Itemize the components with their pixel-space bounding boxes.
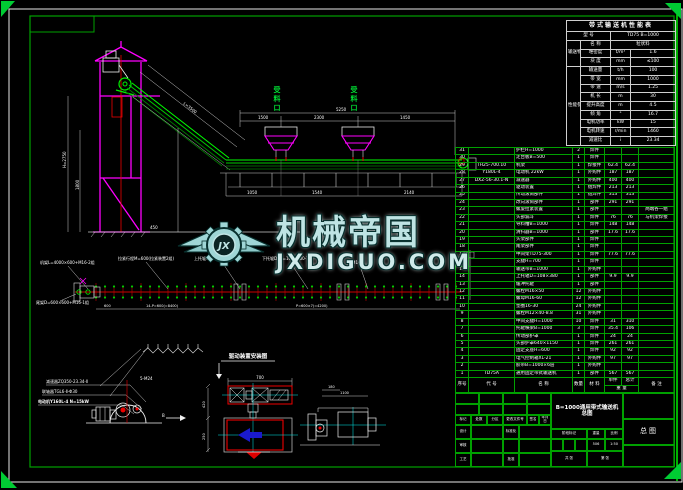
bom-cell xyxy=(639,303,675,310)
bom-cell xyxy=(622,303,639,310)
bom-cell: 77.6 xyxy=(605,251,622,258)
bom-cell: 电动机 22kW xyxy=(515,170,573,177)
bom-cell xyxy=(469,296,515,303)
dim-label: 700 xyxy=(256,375,264,380)
install-title: 驱动装置安装图 xyxy=(229,352,268,360)
bom-cell: 外购件 xyxy=(585,355,605,362)
bom-cell: 6 xyxy=(456,333,469,340)
bom-cell: 76 xyxy=(605,214,622,221)
bom-cell xyxy=(639,348,675,355)
motor-plan xyxy=(222,386,298,404)
bom-cell xyxy=(605,259,622,266)
title-block-cell xyxy=(519,439,551,453)
title-block-cell-count: 处数 xyxy=(471,415,487,425)
bom-cell: 11 xyxy=(456,296,469,303)
title-block-cell-approve: 批准 xyxy=(503,453,519,467)
dim-label: L=3500 xyxy=(182,101,198,115)
bom-cell: 5 xyxy=(456,340,469,347)
dim-label: 1050 xyxy=(247,190,258,195)
bom-cell: 焊件 xyxy=(585,148,605,155)
bom-cell: 两端各一组 xyxy=(639,207,675,214)
bom-cell: 2 xyxy=(456,363,469,370)
title-block-cell xyxy=(503,393,527,404)
bom-cell xyxy=(605,244,622,251)
perf-cell: 型 号 xyxy=(567,32,611,41)
bom-cell xyxy=(622,289,639,296)
bom-cell: 外购件 xyxy=(585,177,605,184)
bom-cell: 与机架焊接 xyxy=(639,214,675,221)
bom-cell: 31 xyxy=(456,148,469,155)
bom-cell xyxy=(605,207,622,214)
bom-cell: 148 xyxy=(605,222,622,229)
bom-cell: 35.4 xyxy=(605,326,622,333)
bom-cell: 24 xyxy=(622,333,639,340)
bom-cell: 1 xyxy=(573,274,585,281)
bom-cell: 148 xyxy=(622,222,639,229)
dim-label: 450 xyxy=(150,225,158,230)
title-block-cell-weight: 506 xyxy=(587,439,605,451)
bom-cell: 1 xyxy=(573,177,585,184)
bom-cell: 400 xyxy=(605,177,622,184)
horizontal-belt xyxy=(220,160,466,187)
bom-cell xyxy=(639,155,675,162)
logo-monogram: JX xyxy=(216,241,231,252)
bom-cell: 1 xyxy=(573,222,585,229)
belt-legs xyxy=(240,173,456,187)
bom-cell: 外购件 xyxy=(585,170,605,177)
perf-cell: 1.25 xyxy=(631,84,676,93)
bom-cell: 291 xyxy=(605,199,622,206)
title-block-cell-check: 审核 xyxy=(455,439,471,453)
bom-cell: DXZ-56-30.1-N xyxy=(469,177,515,184)
drive-station-view: 减速器ZQ350-23.34-Ⅱ 联轴器TGL6-Ⅱ-Φ30 电动机Y160L-… xyxy=(38,344,203,423)
title-block-cell-sheet_no: 第 张 xyxy=(587,451,623,467)
bom-cell: 尾架部件 xyxy=(515,244,573,251)
title-block-cell-zone: 分区 xyxy=(487,415,503,425)
bom-cell: 261 xyxy=(622,340,639,347)
bom-cell: 62.4 xyxy=(605,162,622,169)
bom-cell xyxy=(639,289,675,296)
bom-cell xyxy=(639,363,675,370)
watermark-title: 机械帝国 xyxy=(276,215,472,251)
bom-cell xyxy=(622,311,639,318)
bom-cell: 焊件 xyxy=(585,155,605,162)
bom-cell: 焊件 xyxy=(585,340,605,347)
bom-cell xyxy=(622,148,639,155)
dim-label: 1540 xyxy=(312,190,323,195)
bom-cell xyxy=(622,237,639,244)
direction-label: B xyxy=(162,413,165,418)
break-line xyxy=(143,344,203,353)
perf-cell: m xyxy=(611,102,631,111)
bom-cell xyxy=(639,170,675,177)
bom-cell xyxy=(639,333,675,340)
title-block-cell xyxy=(503,404,527,415)
bom-cell: 4 xyxy=(456,348,469,355)
bom-cell: 213 xyxy=(622,185,639,192)
perf-cell: 性能参数 xyxy=(567,67,581,146)
dim-label: 1450 xyxy=(400,115,411,120)
bom-cell: 部件 xyxy=(585,281,605,288)
perf-cell: 电机转速 xyxy=(581,128,611,137)
bom-cell: 支腿H=700 xyxy=(515,259,573,266)
dim-label: H=2750 xyxy=(62,151,67,168)
bom-cell: 10 xyxy=(573,318,585,325)
bom-cell xyxy=(469,311,515,318)
bom-cell: 垫圈16-30 xyxy=(515,303,573,310)
dim-label: 420 xyxy=(202,401,206,408)
bom-cell xyxy=(605,281,622,288)
bom-cell xyxy=(639,340,675,347)
bom-cell: 部件 xyxy=(585,370,605,377)
bom-cell xyxy=(622,207,639,214)
bom-cell: 1 xyxy=(573,281,585,288)
title-block-cell-title: B=1000通用带式输送机总图 xyxy=(551,393,623,429)
bom-cell: 输送带B=1000 xyxy=(515,266,573,273)
bom-cell xyxy=(639,244,675,251)
bom-cell xyxy=(469,348,515,355)
bom-cell xyxy=(605,363,622,370)
bom-cell: 76 xyxy=(622,214,639,221)
bom-cell: 1 xyxy=(573,251,585,258)
perf-cell: 4.5 xyxy=(631,102,676,111)
perf-cell: 1000 xyxy=(631,75,676,84)
bom-cell xyxy=(639,311,675,318)
title-block-cell xyxy=(471,425,503,439)
plan-dim: P=600×7(=4200) xyxy=(296,304,328,308)
bom-cell: 1 xyxy=(456,370,469,377)
perf-cell: 带式输送机性能表 xyxy=(567,21,676,32)
perf-cell: 堆密度 xyxy=(581,49,611,58)
title-block-cell-mark: 标记 xyxy=(455,415,471,425)
bom-cell: 77.6 xyxy=(622,251,639,258)
title-block-cell xyxy=(455,393,479,404)
title-block: 标记处数分区更改文件号签名年月日设计标准化审核工艺批准B=1000通用带式输送机… xyxy=(455,393,675,467)
bom-cell xyxy=(469,340,515,347)
bom-cell: 12 xyxy=(573,296,585,303)
title-block-cell-standard: 标准化 xyxy=(503,425,519,439)
bom-cell: 备 注 xyxy=(639,378,675,393)
title-block-cell xyxy=(519,425,551,439)
bom-cell xyxy=(622,259,639,266)
bom-cell: 材 料 xyxy=(585,378,605,393)
title-block-cell xyxy=(623,393,675,419)
bom-cell: 外购件 xyxy=(585,289,605,296)
install-labels: 驱动装置安装图 700 420 250 xyxy=(202,352,268,440)
bom-cell: 机架 xyxy=(515,162,573,169)
bom-cell: 1 xyxy=(573,207,585,214)
perf-cell: kW xyxy=(611,119,631,128)
bom-cell: 螺栓M12×40-8.8 xyxy=(515,311,573,318)
bom-cell: 1 xyxy=(573,370,585,377)
perf-cell: 1460 xyxy=(631,128,676,137)
bom-cell: 上托辊D=108×380 xyxy=(515,274,573,281)
perf-cell: 块 度 xyxy=(581,58,611,67)
bom-cell xyxy=(605,266,622,273)
title-block-cell xyxy=(623,445,675,467)
bom-cell: 31 xyxy=(605,318,622,325)
bom-cell xyxy=(639,274,675,281)
bom-cell xyxy=(622,363,639,370)
bom-cell: 1 xyxy=(573,266,585,273)
bom-cell xyxy=(639,199,675,206)
bom-cell xyxy=(639,296,675,303)
bom-cell: 2 xyxy=(573,148,585,155)
title-block-cell-scale_label: 比例 xyxy=(605,429,623,439)
bom-cell: 焊件 xyxy=(585,237,605,244)
bom-cell: 1 xyxy=(573,340,585,347)
perf-cell: 机 长 xyxy=(581,93,611,102)
bom-cell: 1 xyxy=(573,259,585,266)
bom-cell xyxy=(622,281,639,288)
bom-cell xyxy=(639,229,675,236)
bom-cell: 213 xyxy=(605,185,622,192)
bom-cell: 8 xyxy=(456,318,469,325)
bom-cell xyxy=(639,222,675,229)
bom-cell: 走台板B=500 xyxy=(515,155,573,162)
title-block-cell xyxy=(551,439,563,451)
bom-cell: 3 xyxy=(573,326,585,333)
bom-cell: 外购件 xyxy=(585,303,605,310)
bom-cell: 外购件 xyxy=(585,363,605,370)
bom-cell xyxy=(639,251,675,258)
bom-cell: 261 xyxy=(605,340,622,347)
tower-centerline xyxy=(112,55,122,232)
bom-cell: 外购件 xyxy=(585,266,605,273)
bom-cell: 焊件 xyxy=(585,259,605,266)
bom-cell: 减速器 xyxy=(515,177,573,184)
bom-cell: 567 xyxy=(622,370,639,377)
bom-cell: 外购件 xyxy=(585,296,605,303)
bom-cell: 26 xyxy=(456,185,469,192)
bom-cell: 27 xyxy=(456,177,469,184)
plan-label: 拉紧行程M=600(拉紧装置2组) xyxy=(118,255,175,261)
plan-label: 机架L=4000×600+M16-2组 xyxy=(40,259,95,265)
north-arrow xyxy=(238,428,262,442)
dim-label: 2140 xyxy=(404,190,415,195)
dim-label: 180 xyxy=(328,385,335,389)
bom-cell: 头部护罩640×1150 xyxy=(515,340,573,347)
bom-cell: 97 xyxy=(605,355,622,362)
dim-label: 1100 xyxy=(340,391,349,395)
bom-cell: 24 xyxy=(573,303,585,310)
perf-cell: i xyxy=(611,137,631,146)
bom-cell xyxy=(469,155,515,162)
bom-cell xyxy=(622,155,639,162)
bom-cell: 10 xyxy=(456,303,469,310)
title-block-cell xyxy=(503,439,519,453)
dim-label: 1800 xyxy=(75,179,80,190)
bom-cell: 序号 xyxy=(456,378,469,393)
bom-cell: 电气控制箱XL-21 xyxy=(515,355,573,362)
bom-cell: 焊接件 xyxy=(585,162,605,169)
perf-cell: mm xyxy=(611,58,631,67)
plan-label: 尾架D=600×600+M16-1组 xyxy=(36,299,89,305)
bom-cell xyxy=(605,148,622,155)
feed-port-label-2: 受料口 xyxy=(349,86,359,113)
bom-cell: 9 xyxy=(456,311,469,318)
perf-cell: m/s xyxy=(611,84,631,93)
bom-cell: 1 xyxy=(573,237,585,244)
bom-cell: 缓冲托辊 xyxy=(515,281,573,288)
title-block-cell-design: 设计 xyxy=(455,425,471,439)
title-block-cell xyxy=(563,439,575,451)
title-block-cell xyxy=(527,393,551,404)
perf-cell: m xyxy=(611,93,631,102)
title-block-cell xyxy=(479,393,503,404)
bom-cell: 92 xyxy=(605,348,622,355)
bom-cell: 螺旋拉紧装置 xyxy=(515,207,573,214)
bom-cell xyxy=(639,355,675,362)
drive-label: 5-M24 xyxy=(140,376,153,381)
perf-cell: 倾 角 xyxy=(581,110,611,119)
bom-cell: 9.9 xyxy=(622,274,639,281)
bom-cell xyxy=(639,192,675,199)
bom-cell: 部件 xyxy=(585,229,605,236)
title-block-cell xyxy=(471,439,503,453)
bom-cell: 1 xyxy=(573,244,585,251)
drive-label: 电动机Y160L-4 N=15kW xyxy=(38,398,90,404)
bom-cell: 62.4 xyxy=(622,162,639,169)
bom-cell: 焊件 xyxy=(585,251,605,258)
title-block-cell xyxy=(575,439,587,451)
perf-cell: 带 速 xyxy=(581,84,611,93)
perf-cell: 30 xyxy=(631,93,676,102)
bom-cell xyxy=(622,244,639,251)
bom-cell: 12 xyxy=(573,289,585,296)
bom-cell: 单件 xyxy=(605,378,622,385)
title-block-cell-process: 工艺 xyxy=(455,453,471,467)
perf-cell: 提升高度 xyxy=(581,102,611,111)
dim-label: 1500 xyxy=(258,115,269,120)
bom-cell xyxy=(622,296,639,303)
title-block-cell-sign: 签名 xyxy=(527,415,539,425)
bom-cell: 部件 xyxy=(585,207,605,214)
plan-dim: 600 xyxy=(104,304,111,308)
bom-cell: 传动滚筒部件 xyxy=(515,192,573,199)
bom-cell: 187 xyxy=(622,170,639,177)
bom-cell xyxy=(605,155,622,162)
bom-cell: 焊件 xyxy=(585,244,605,251)
bom-cell: 400 xyxy=(622,177,639,184)
perf-cell: 100 xyxy=(631,67,676,76)
bom-cell: 数量 xyxy=(573,378,585,393)
bom-cell: Y180L-4 xyxy=(469,170,515,177)
bom-cell xyxy=(639,281,675,288)
title-block-cell xyxy=(471,453,503,467)
watermark: JX 机械帝国 JXDIGUO.COM xyxy=(176,196,506,292)
bom-cell: 1 xyxy=(573,363,585,370)
bom-cell: 焊件 xyxy=(585,222,605,229)
bom-cell: 胶带B=1000×6层 xyxy=(515,363,573,370)
bom-cell: 1 xyxy=(573,333,585,340)
watermark-logo: JX xyxy=(176,204,272,284)
bom-cell xyxy=(605,296,622,303)
perf-cell: 输送物料 xyxy=(567,40,581,66)
install-flow-arrow xyxy=(216,363,222,379)
bom-cell xyxy=(469,185,515,192)
bom-cell: 313 xyxy=(622,192,639,199)
bom-cell: 313 xyxy=(605,192,622,199)
bom-cell: 重 量 xyxy=(605,385,639,393)
bom-cell: 代 号 xyxy=(469,378,515,393)
bom-cell: 17.6 xyxy=(605,229,622,236)
bom-cell: 1 xyxy=(573,229,585,236)
bom-cell: 9.9 xyxy=(605,274,622,281)
perf-cell: 23.34 xyxy=(631,137,676,146)
title-block-cell-scale: 1:50 xyxy=(605,439,623,451)
drive-labels: 减速器ZQ350-23.34-Ⅱ 联轴器TGL6-Ⅱ-Φ30 电动机Y160L-… xyxy=(38,376,165,418)
title-block-cell-type: 总图 xyxy=(623,419,675,445)
title-block-cell-weight_label: 重量 xyxy=(587,429,605,439)
bom-cell xyxy=(469,303,515,310)
bom-cell: 名 称 xyxy=(515,378,573,393)
bom-cell: 焊件 xyxy=(585,318,605,325)
drive-installation-view: 驱动装置安装图 700 420 250 xyxy=(202,352,298,459)
bom-cell: 1 xyxy=(573,199,585,206)
feed-hopper-1 xyxy=(265,127,297,161)
feed-hopper-2 xyxy=(342,127,374,161)
bom-cell: 1 xyxy=(573,214,585,221)
title-block-cell xyxy=(527,404,551,415)
drive-label: 联轴器TGL6-Ⅱ-Φ30 xyxy=(42,388,78,394)
perf-cell: mm xyxy=(611,75,631,84)
bom-cell: 7 xyxy=(456,326,469,333)
watermark-text: 机械帝国 JXDIGUO.COM xyxy=(276,215,472,273)
bom-cell: 驱动装置 xyxy=(515,185,573,192)
bom-cell: 28 xyxy=(456,170,469,177)
bom-cell: 护栏H=1000 xyxy=(515,148,573,155)
drive-machine xyxy=(86,380,162,423)
title-block-cell xyxy=(479,404,503,415)
bom-cell xyxy=(622,266,639,273)
perf-cell: 名 称 xyxy=(581,40,611,49)
bom-cell: 螺母M16-60 xyxy=(515,296,573,303)
dim-label: 2300 xyxy=(314,115,325,120)
title-block-cell-date: 年月日 xyxy=(539,415,551,425)
bom-cell: 焊件 xyxy=(585,333,605,340)
bom-cell: 螺栓M16×50 xyxy=(515,289,573,296)
bom-cell: 17.6 xyxy=(622,229,639,236)
bom-cell: 头架部件 xyxy=(515,237,573,244)
bom-cell xyxy=(639,370,675,377)
title-block-cell xyxy=(455,404,479,415)
bom-cell: 1 xyxy=(573,348,585,355)
bom-cell xyxy=(639,185,675,192)
bom-cell xyxy=(639,162,675,169)
bom-cell: 通用固定带式输送机 xyxy=(515,370,573,377)
bom-cell: 组焊件 xyxy=(585,185,605,192)
bom-cell: 92 xyxy=(622,348,639,355)
bom-cell xyxy=(469,318,515,325)
bom-cell: 1 xyxy=(573,162,585,169)
perf-cell: r/min xyxy=(611,128,631,137)
perf-cell: 输送量 xyxy=(581,67,611,76)
bom-cell xyxy=(639,259,675,266)
bom-cell: 3 xyxy=(456,355,469,362)
bom-cell xyxy=(469,363,515,370)
bom-cell: 中间支腿H=1000 xyxy=(515,318,573,325)
bom-cell: 头部漏斗 xyxy=(515,214,573,221)
pulley-geometry xyxy=(300,408,380,445)
bom-cell: 567 xyxy=(605,370,622,377)
bom-cell: 传动部护罩 xyxy=(515,333,573,340)
bom-cell: 1 xyxy=(573,155,585,162)
bom-cell xyxy=(605,303,622,310)
bom-cell: 310 xyxy=(622,318,639,325)
bom-cell: 焊件 xyxy=(585,214,605,221)
bom-cell: 31 xyxy=(573,311,585,318)
